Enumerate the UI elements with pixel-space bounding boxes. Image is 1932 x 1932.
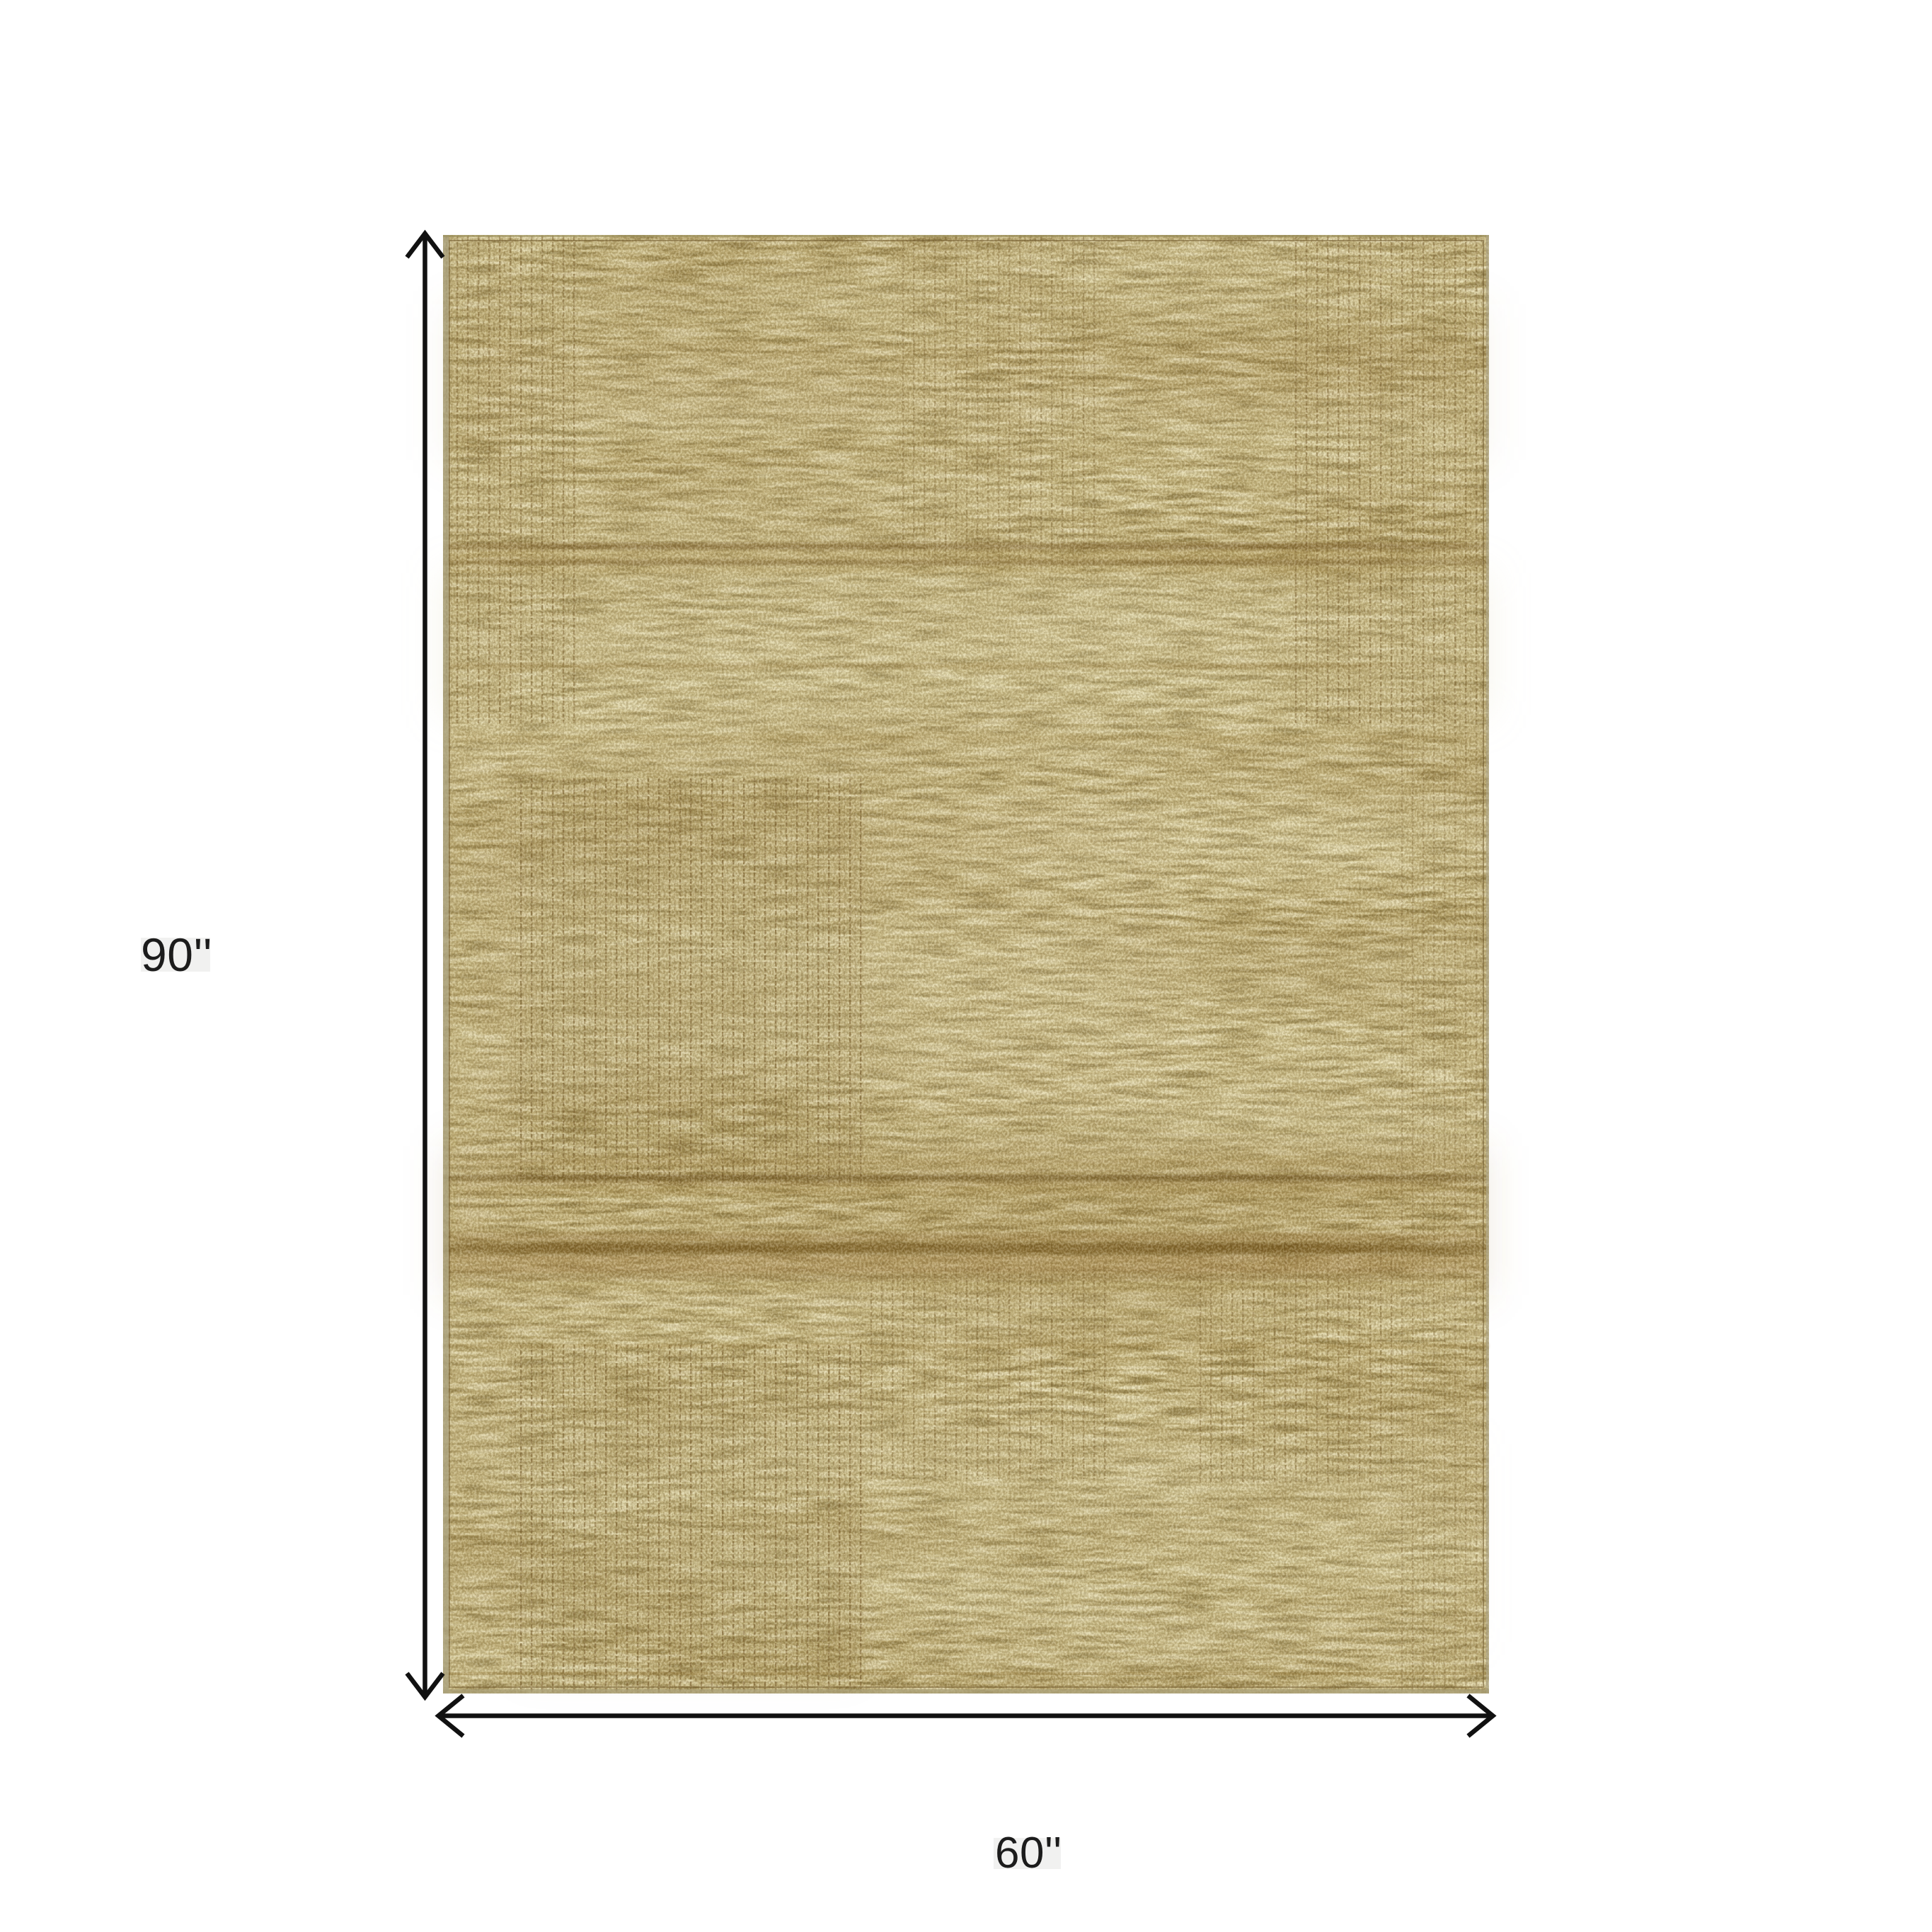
svg-text:60'': 60'' (995, 1829, 1062, 1878)
svg-text:90'': 90'' (141, 928, 212, 981)
